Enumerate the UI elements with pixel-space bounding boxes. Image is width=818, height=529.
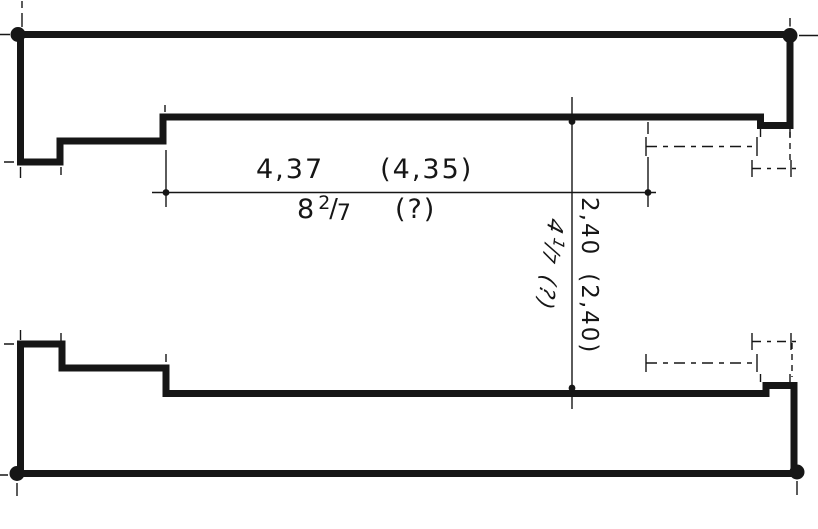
plan-drawing-sheet: 4,37(4,35) 82/7(?) 2,40(2,40) 41/7(?): [0, 0, 818, 529]
survey-point-bottom-left: [10, 466, 25, 481]
horizontal-dimension-label-fraction: 82/7(?): [297, 194, 436, 225]
dimension-endpoint-dot: [163, 189, 170, 196]
dimension-fraction-alt: (?): [395, 196, 436, 224]
dimension-endpoint-dot: [569, 118, 576, 125]
dimension-fraction: 82/7: [297, 194, 351, 225]
upper-wall-outline: [21, 35, 791, 163]
dimension-fraction-alt: (?): [533, 272, 560, 313]
plan-drawing: [0, 0, 818, 529]
corner-ticks-lower-wall: [4, 330, 790, 382]
hidden-edge-ticks-upper: [646, 137, 791, 177]
survey-point-top-right: [783, 28, 798, 43]
hidden-edge-ticks-lower: [646, 333, 791, 372]
survey-point-top-left: [11, 27, 26, 42]
dimension-endpoint-dot: [645, 189, 652, 196]
dimension-value: 4,37: [256, 156, 324, 184]
vertical-dimension-label-metric: 2,40(2,40): [577, 197, 601, 354]
horizontal-dimension-label-metric: 4,37(4,35): [256, 156, 473, 184]
dimension-fraction: 41/7: [537, 215, 569, 267]
dimension-value-alt: (2,40): [577, 273, 601, 354]
dimension-value: 2,40: [577, 197, 601, 256]
crosshair-ticks: [0, 1, 818, 496]
dimension-endpoint-dot: [569, 385, 576, 392]
dimension-value-alt: (4,35): [380, 156, 473, 184]
survey-point-bottom-right: [790, 465, 805, 480]
